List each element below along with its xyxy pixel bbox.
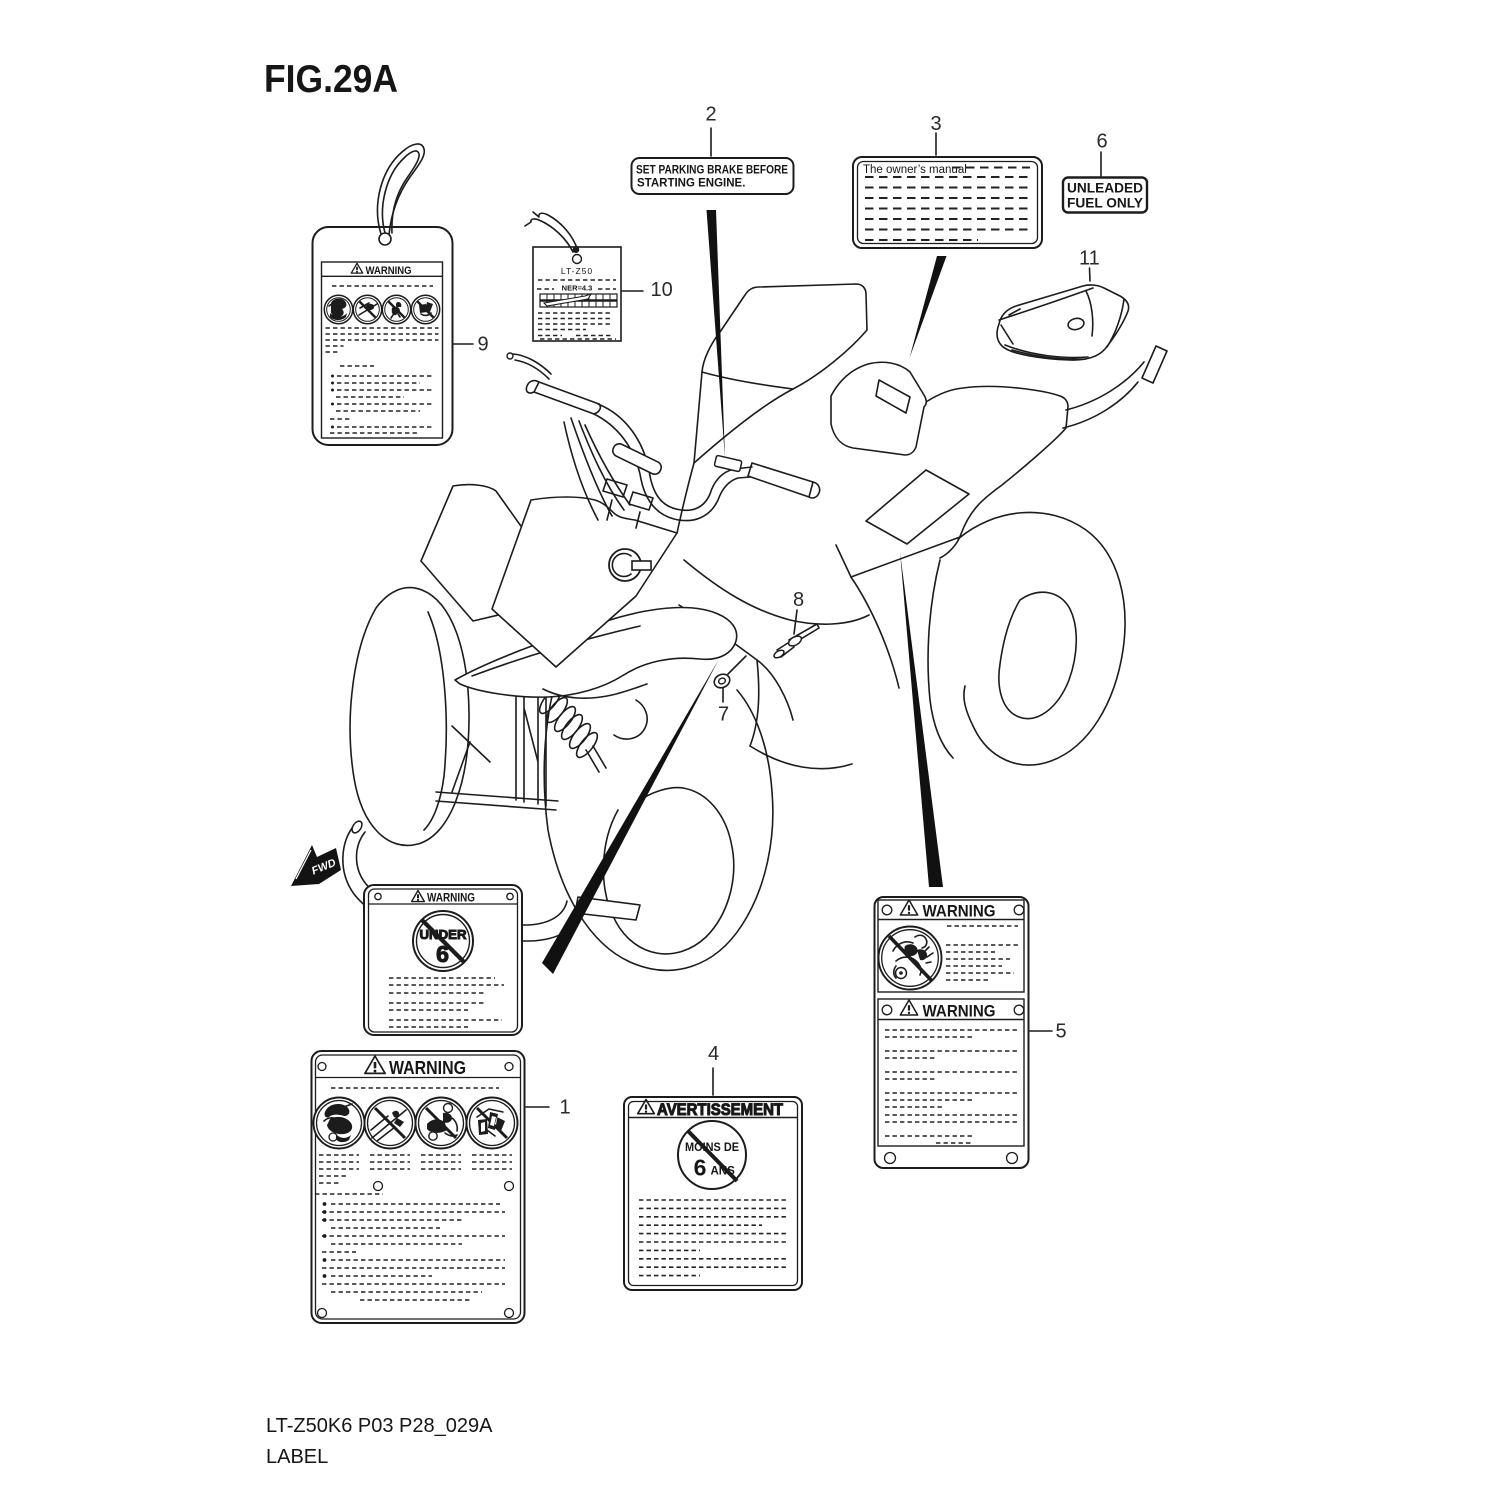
svg-text:6: 6 [436, 941, 449, 967]
svg-text:UNLEADED: UNLEADED [1067, 180, 1143, 196]
svg-text:6: 6 [1097, 131, 1108, 153]
svg-text:1: 1 [560, 1097, 571, 1119]
svg-text:10: 10 [651, 279, 673, 301]
svg-text:NER=4.3: NER=4.3 [562, 284, 593, 293]
svg-text:WARNING: WARNING [427, 891, 475, 905]
svg-text:STARTING ENGINE.: STARTING ENGINE. [637, 178, 745, 190]
svg-text:LABEL: LABEL [266, 1446, 328, 1468]
svg-text:FIG.29A: FIG.29A [264, 58, 398, 101]
svg-text:2: 2 [706, 104, 717, 126]
svg-text:The owner’s manual: The owner’s manual [863, 164, 967, 176]
svg-text:SET PARKING BRAKE BEFORE: SET PARKING BRAKE BEFORE [636, 165, 788, 177]
svg-text:WARNING: WARNING [923, 1002, 996, 1021]
svg-text:LT-Z50: LT-Z50 [561, 266, 593, 276]
svg-text:6: 6 [694, 1155, 707, 1181]
svg-text:7: 7 [718, 704, 729, 726]
svg-text:AVERTISSEMENT: AVERTISSEMENT [657, 1101, 783, 1119]
svg-text:MOINS DE: MOINS DE [685, 1140, 739, 1154]
svg-text:11: 11 [1079, 248, 1100, 270]
svg-text:3: 3 [931, 113, 942, 135]
svg-text:ANS: ANS [711, 1166, 736, 1178]
svg-text:9: 9 [478, 334, 489, 356]
svg-text:5: 5 [1056, 1021, 1067, 1043]
svg-text:WARNING: WARNING [923, 902, 996, 921]
svg-text:8: 8 [793, 589, 804, 611]
svg-text:WARNING: WARNING [389, 1058, 466, 1078]
svg-text:4: 4 [708, 1043, 719, 1065]
svg-text:UNDER: UNDER [420, 927, 468, 942]
svg-text:WARNING: WARNING [366, 265, 412, 277]
svg-text:FUEL ONLY: FUEL ONLY [1067, 195, 1144, 211]
svg-text:LT-Z50K6 P03 P28_029A: LT-Z50K6 P03 P28_029A [266, 1415, 493, 1437]
